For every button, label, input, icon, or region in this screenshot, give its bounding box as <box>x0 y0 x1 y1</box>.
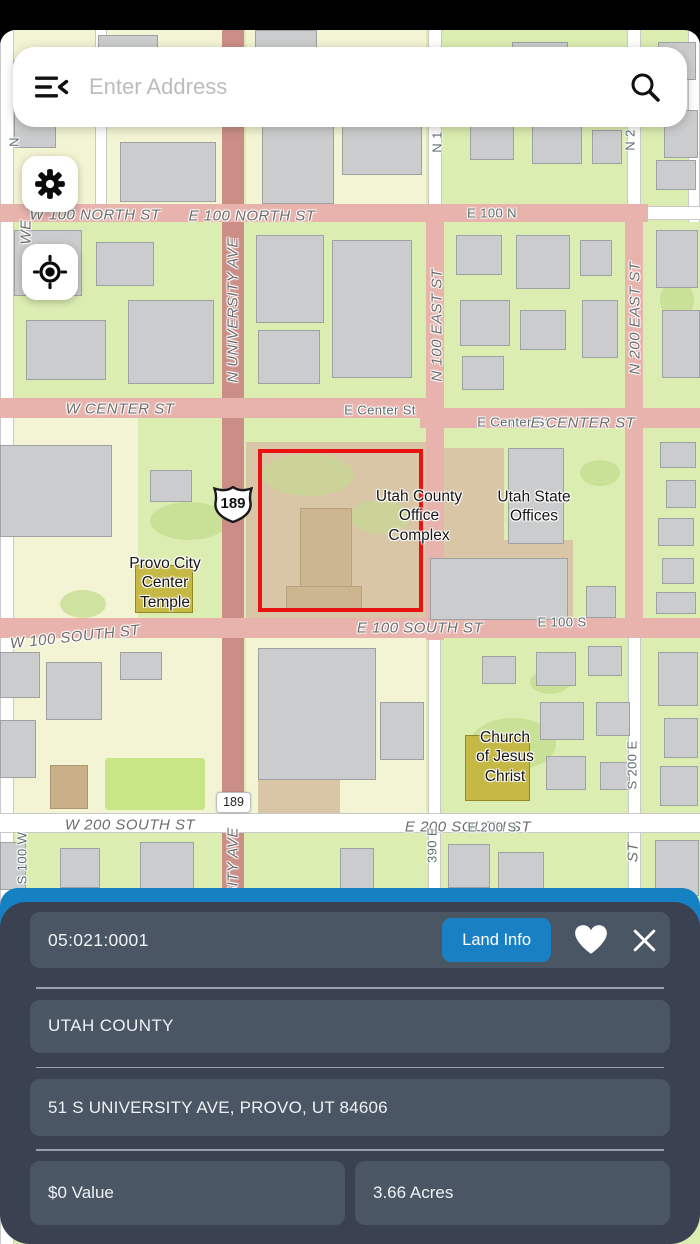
map-building <box>658 518 694 546</box>
search-icon[interactable] <box>629 71 661 103</box>
map-building <box>662 310 700 378</box>
map-building <box>592 130 622 164</box>
street-label: W 200 SOUTH ST <box>65 817 195 834</box>
map-building <box>0 445 112 537</box>
map-building <box>536 652 576 686</box>
divider <box>36 1067 664 1069</box>
map-building <box>258 648 376 780</box>
poi-label: Utah County Office Complex <box>376 487 462 545</box>
map-building <box>448 844 490 888</box>
locate-me-button[interactable] <box>22 244 78 300</box>
street-label: N <box>7 137 22 147</box>
map-building <box>540 702 584 740</box>
street-label: N UNIVERSITY AVE <box>225 237 242 383</box>
map-building <box>258 330 320 384</box>
address-search-bar <box>13 47 687 127</box>
map-building <box>0 652 40 698</box>
us-route-shield-number: 189 <box>213 495 253 512</box>
map-building <box>332 240 412 378</box>
search-input[interactable] <box>87 73 629 101</box>
map-building <box>50 765 88 809</box>
street-label: N 200 EAST ST <box>627 261 644 374</box>
address-card: 51 S UNIVERSITY AVE, PROVO, UT 84606 <box>30 1079 670 1136</box>
map-building <box>666 480 696 508</box>
parcel-id: 05:021:0001 <box>48 930 442 951</box>
street-label: ST <box>625 842 642 862</box>
map-building <box>0 720 36 778</box>
favorite-button[interactable] <box>573 924 609 956</box>
map-building <box>120 142 216 202</box>
street-label: WE <box>18 219 35 244</box>
street-label: E 200 S <box>467 820 516 835</box>
map-building <box>660 766 698 806</box>
street-label: N 100 EAST ST <box>429 268 446 381</box>
status-bar <box>0 0 700 30</box>
gear-icon <box>32 166 68 202</box>
parcel-header-card: 05:021:0001 Land Info <box>30 912 670 968</box>
value-acres-row: $0 Value 3.66 Acres <box>30 1161 670 1225</box>
map-building <box>660 442 696 468</box>
map-building <box>656 592 696 614</box>
crosshair-location-icon <box>32 254 68 290</box>
street-label: W CENTER ST <box>66 401 175 418</box>
street-label: E 100 S <box>537 615 586 630</box>
map-building <box>430 558 568 620</box>
street-label: E Center St <box>344 403 416 418</box>
map-building <box>120 652 162 680</box>
poi-label: Provo City Center Temple <box>129 554 201 612</box>
map-building <box>656 160 696 190</box>
map-building <box>46 662 102 720</box>
street-label: S 100 W <box>15 832 30 885</box>
land-info-button[interactable]: Land Info <box>442 918 551 962</box>
street-label: E 100 NORTH ST <box>189 208 316 225</box>
map-building <box>516 235 570 289</box>
map-building <box>580 240 612 276</box>
map-building <box>380 702 424 760</box>
poi-label: Church of Jesus Christ <box>476 728 534 786</box>
street-label: SITY AVE <box>225 827 242 897</box>
map-building <box>662 558 694 584</box>
street-label: N 2 <box>623 129 638 150</box>
map-building <box>596 702 630 736</box>
street-label: 390 E <box>425 827 440 863</box>
map-building <box>588 646 622 676</box>
map-tree <box>580 460 620 486</box>
street-label: E CENTER ST <box>531 415 636 432</box>
route-189-label: 189 <box>216 792 251 813</box>
value-card: $0 Value <box>30 1161 345 1225</box>
map-building <box>256 235 324 323</box>
map-building <box>520 310 566 350</box>
divider <box>36 987 664 989</box>
street-label: N 1 <box>430 131 445 152</box>
map-building <box>340 848 374 890</box>
heart-icon <box>573 924 609 956</box>
map-tree <box>60 590 106 618</box>
map-building <box>26 320 106 380</box>
map-building <box>664 718 698 758</box>
close-icon <box>631 927 658 954</box>
map-building <box>546 756 586 790</box>
map-building <box>128 300 214 384</box>
map-building <box>658 652 698 706</box>
map-building <box>262 118 334 204</box>
parcel-info-panel: 05:021:0001 Land Info UTAH COUNTY 51 S U… <box>0 902 700 1244</box>
street-label: S 200 E <box>625 740 640 789</box>
map-building <box>582 300 618 358</box>
street-label: E 100 N <box>467 206 517 221</box>
map-region <box>105 758 205 810</box>
map-building <box>462 356 504 390</box>
close-button[interactable] <box>631 927 658 954</box>
us-route-189-shield-icon: 189 <box>213 486 253 523</box>
map-building <box>482 656 516 684</box>
county-card: UTAH COUNTY <box>30 1000 670 1053</box>
divider <box>36 1149 664 1151</box>
street-label: E 100 SOUTH ST <box>357 620 483 637</box>
map-building <box>470 122 514 160</box>
map-building <box>60 848 100 888</box>
map-building <box>150 470 192 502</box>
poi-label: Utah State Offices <box>497 488 570 527</box>
map-building <box>460 300 510 346</box>
map-building <box>456 235 502 275</box>
map-road <box>648 206 700 220</box>
map-building <box>96 242 154 286</box>
settings-button[interactable] <box>22 156 78 212</box>
acres-card: 3.66 Acres <box>355 1161 670 1225</box>
menu-collapse-icon[interactable] <box>35 72 69 102</box>
map-building <box>586 586 616 618</box>
map-building <box>656 230 698 288</box>
map-building <box>140 842 194 890</box>
